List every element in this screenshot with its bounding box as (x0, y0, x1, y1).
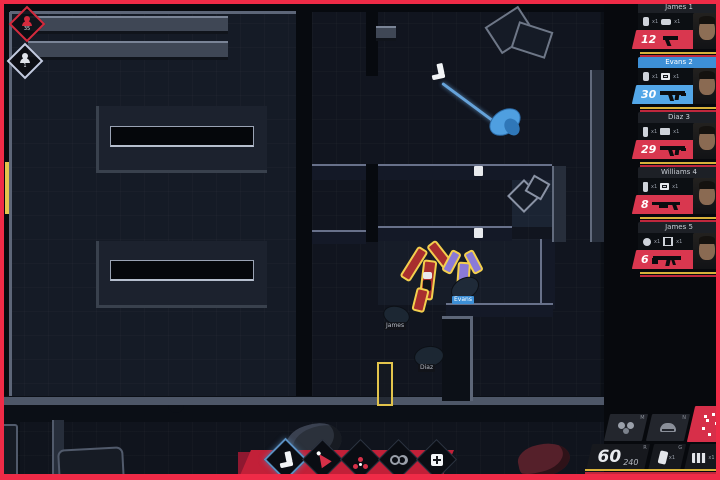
unit-label: Diaz (418, 364, 435, 372)
door-highlight[interactable] (377, 362, 393, 406)
taser-icon (661, 19, 671, 25)
handcuffs-icon (390, 455, 400, 465)
smg-icon (659, 87, 691, 102)
breach-charge-icon (660, 183, 669, 190)
helmet-icon (660, 423, 676, 432)
flashbang-icon (643, 72, 649, 81)
shelf-bracket (376, 26, 396, 41)
portrait (693, 233, 720, 269)
portrait (693, 13, 720, 49)
tactic-button[interactable] (687, 406, 720, 442)
ammo-slot[interactable]: R 60 240 (586, 444, 650, 471)
hotkey-label: N (682, 415, 686, 421)
counter-groove (110, 260, 254, 281)
ammo-count: 6 (641, 253, 649, 266)
cabinet (0, 424, 18, 480)
magazine-icon (657, 450, 668, 465)
breach-charge-icon (661, 73, 670, 80)
civilian-count: 1 (23, 63, 26, 69)
suspect-hands (423, 272, 432, 279)
hotkey-label: F (716, 445, 719, 451)
magazine-slot[interactable]: G x1 (648, 444, 686, 471)
gas-mask-icon (617, 422, 635, 434)
squad-member-name: Diaz 3 (638, 112, 720, 123)
suspect-count: 35 (24, 26, 30, 32)
camera-icon (660, 128, 670, 135)
game-screen: Evans James Diaz 35 1 12 James 1 x1 x1 (0, 0, 720, 480)
pepper-spray-icon (643, 182, 648, 192)
wall-bottom-edge (0, 397, 604, 405)
portrait (693, 123, 720, 159)
kick-order-icon (431, 64, 445, 79)
weapon-plate: 30 (632, 85, 698, 104)
hotkey-label: R (643, 445, 646, 451)
helmet-toggle[interactable]: N (646, 414, 690, 441)
unit-label: Evans (452, 296, 474, 304)
gas-mask-toggle[interactable]: M (604, 414, 648, 441)
exit-door-highlight[interactable] (5, 162, 9, 214)
squad-card-4[interactable]: 8 Williams 4 x1 x1 (630, 167, 720, 215)
kick-icon (277, 451, 294, 469)
wall-vertical-c (540, 239, 555, 309)
squad-member-name: James 5 (638, 222, 720, 233)
squad-card-3[interactable]: 29 Diaz 3 x1 x1 (630, 112, 720, 160)
pistol-icon (659, 32, 691, 47)
wall-horizontal-d (446, 303, 553, 317)
door-marker-icon[interactable] (474, 228, 483, 238)
hotkey-label: M (640, 415, 644, 421)
card-stripes (640, 272, 720, 277)
ammo-count: 30 (641, 88, 656, 101)
breach-charge-slot[interactable]: F x1 (684, 444, 720, 471)
wall-vertical-b (366, 164, 378, 242)
map-view[interactable]: Evans James Diaz (0, 0, 604, 480)
handcuffs-icon (663, 237, 673, 246)
ammo-reserve-count: 240 (623, 458, 638, 467)
ammo-mag-count: 60 (598, 444, 622, 471)
portrait (693, 68, 720, 104)
ammo-count: 8 (641, 198, 649, 211)
weapon-plate: 12 (632, 30, 698, 49)
smg-icon (659, 142, 691, 157)
ammo-count: 12 (641, 33, 656, 46)
squad-member-name: Williams 4 (638, 167, 720, 178)
gas-grenade-icon (358, 457, 363, 462)
suspect-icon (24, 16, 30, 22)
unit-label: James (384, 322, 406, 330)
weapon-plate: 8 (632, 195, 698, 214)
screen-border-bottom (0, 474, 720, 480)
wall-top-edge (8, 11, 300, 14)
weapon-plate: 29 (632, 140, 698, 159)
civilian-icon (22, 53, 28, 59)
pepper-spray-icon (314, 451, 331, 469)
portrait (693, 178, 720, 214)
pillar (442, 316, 473, 401)
wall-horizontal-a (312, 164, 552, 180)
squad-card-1[interactable]: 12 James 1 x1 x1 (630, 2, 720, 50)
hotkey-label: G (678, 445, 682, 451)
flashbang-icon (643, 17, 649, 26)
rifle-icon (652, 252, 684, 267)
medkit-icon (431, 454, 443, 466)
door-marker-icon[interactable] (474, 166, 483, 176)
wall-horizontal-b (312, 230, 366, 244)
wall-mid-vertical (296, 8, 312, 398)
breach-charge-icon (692, 453, 706, 463)
squad-card-2[interactable]: 30 Evans 2 x1 x1 (630, 57, 720, 105)
weapon-plate: 6 (632, 250, 698, 269)
counter-groove (110, 126, 254, 147)
squad-member-name: James 1 (638, 2, 720, 13)
wall-left-edge (9, 12, 12, 398)
ammo-count: 29 (641, 143, 656, 156)
squad-member-name: Evans 2 (638, 57, 720, 68)
shelf-top (28, 41, 228, 60)
gas-grenade-icon (643, 238, 651, 246)
squad-card-5[interactable]: 6 James 5 x1 x1 (630, 222, 720, 270)
wall-right (590, 70, 604, 242)
wall-right-inner (552, 166, 566, 242)
shelf-top (28, 16, 228, 34)
shotgun-icon (652, 197, 684, 212)
hud-stripe-yellow (585, 469, 720, 471)
suspect-legs (411, 287, 429, 313)
pepper-spray-icon (643, 127, 648, 137)
tactic-scatter-icon (698, 411, 718, 437)
